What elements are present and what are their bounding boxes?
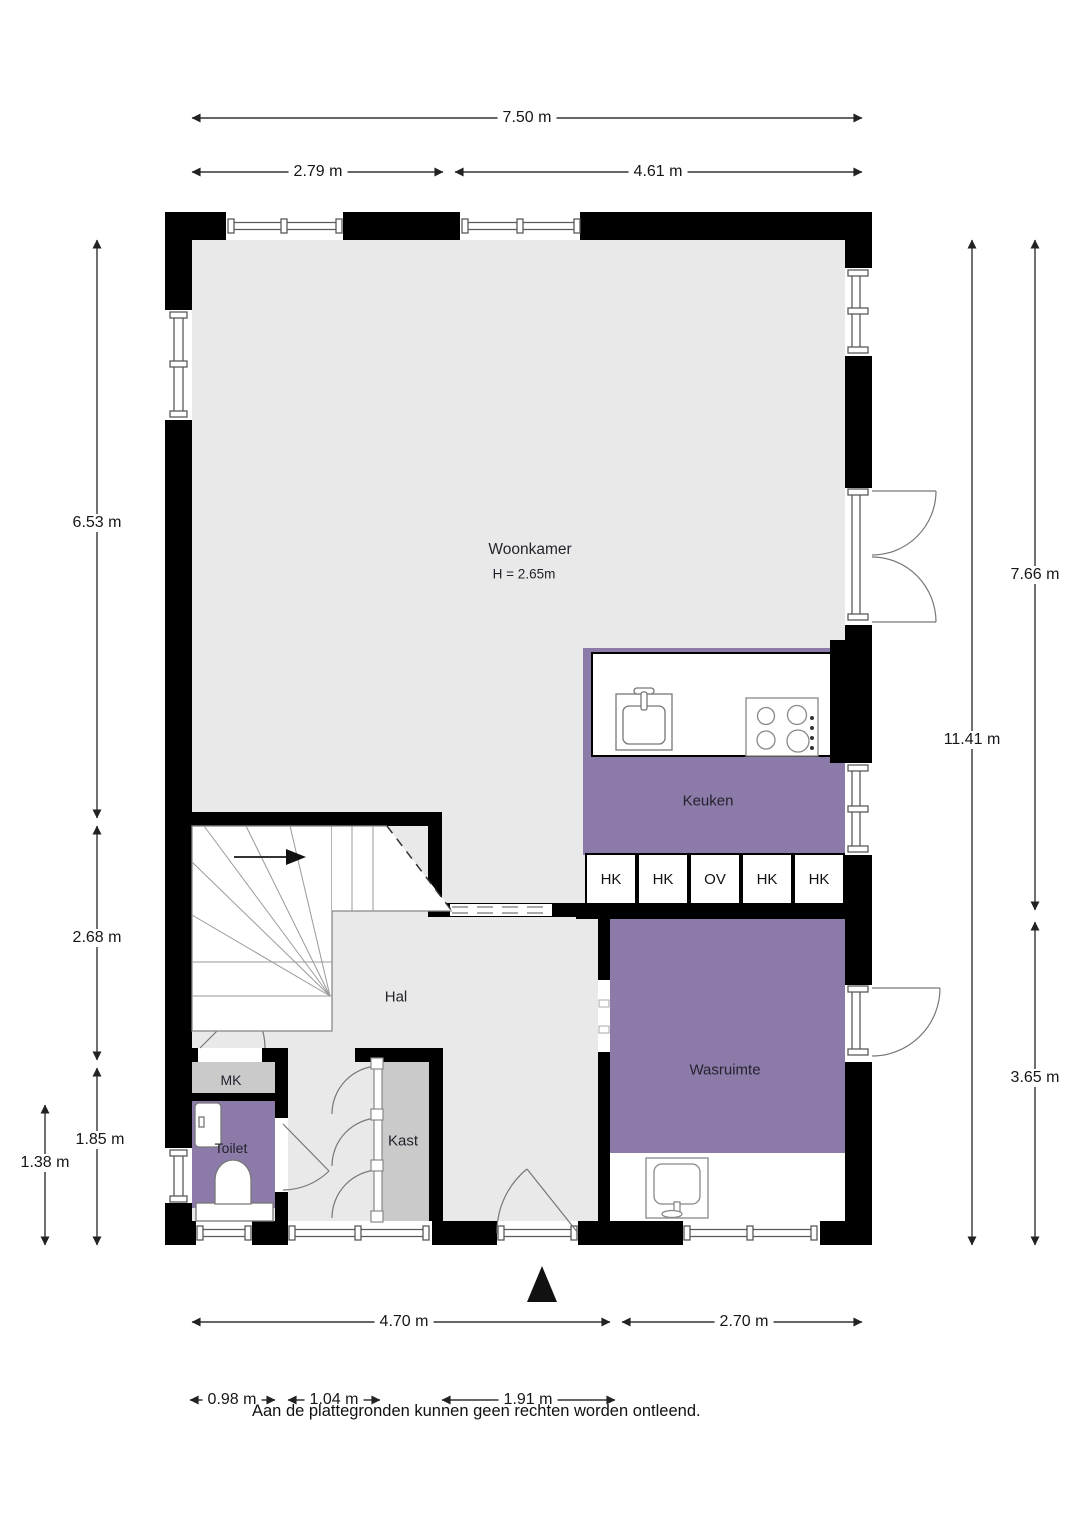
dim-top-left: 2.79 m [289, 163, 348, 181]
door-french [872, 491, 936, 622]
dim-left-upper: 6.53 m [68, 514, 127, 532]
dim-right-upper: 7.66 m [1006, 566, 1065, 584]
window-left-upper [165, 310, 192, 420]
dim-bottom-left: 4.70 m [375, 1313, 434, 1331]
door-wasruimte-hal-opening [598, 980, 610, 1052]
wall-mk-toilet-divider [192, 1093, 275, 1101]
opening-hal-woonkamer [450, 904, 552, 916]
dim-bottom-right: 2.70 m [715, 1313, 774, 1331]
wall-pier-kitchen [830, 640, 845, 763]
door-toilet-opening [275, 1118, 288, 1192]
cabinet-label: HK [653, 871, 674, 888]
dim-right-total: 11.41 m [939, 731, 1006, 749]
dim-top-total: 7.50 m [498, 109, 557, 127]
window-right-upper [845, 268, 872, 356]
disclaimer-text: Aan de plattegronden kunnen geen rechten… [252, 1402, 701, 1421]
door-front-opening [497, 1221, 578, 1245]
door-french-opening [845, 488, 872, 625]
room-wasruimte-fill [610, 919, 845, 1153]
wall-wasruimte-top [576, 905, 845, 919]
wasruimte-counter [610, 1153, 845, 1221]
room-label-wasruimte: Wasruimte [689, 1062, 760, 1079]
room-label-woonkamer: Woonkamer [488, 541, 571, 559]
window-bottom-wasruimte [683, 1221, 820, 1245]
cabinet-label: OV [704, 871, 726, 888]
wall-stairs-top [192, 812, 442, 826]
cabinet-hk-2: HK [637, 853, 689, 905]
dim-left-lower: 1.85 m [71, 1131, 130, 1149]
window-bottom-toilet [196, 1221, 252, 1245]
door-wasruimte-exterior [872, 988, 940, 1056]
room-label-kast: Kast [388, 1133, 418, 1150]
room-label-mk: MK [221, 1072, 242, 1088]
door-mk-opening [198, 1048, 262, 1062]
window-left-toilet [165, 1148, 192, 1203]
dim-left-inner: 1.38 m [16, 1154, 75, 1172]
cabinet-hk-1: HK [585, 853, 637, 905]
keuken-counter [591, 652, 841, 757]
dim-top-right: 4.61 m [629, 163, 688, 181]
window-bottom-hal [288, 1221, 432, 1245]
room-label-toilet: Toilet [215, 1140, 248, 1156]
dim-left-mid: 2.68 m [68, 929, 127, 947]
cabinet-label: HK [601, 871, 622, 888]
entrance-arrow-icon [527, 1266, 557, 1302]
room-label-hal: Hal [385, 989, 408, 1006]
cabinet-hk-4: HK [793, 853, 845, 905]
cabinet-label: HK [757, 871, 778, 888]
window-right-keuken [845, 763, 872, 855]
cabinet-hk-3: HK [741, 853, 793, 905]
wall-kast-top [355, 1048, 443, 1062]
wall-stairs-right [428, 826, 442, 905]
window-top-left [226, 212, 343, 240]
floorplan-page: HK HK OV HK HK [0, 0, 1080, 1526]
door-wasruimte-ext-opening [845, 985, 872, 1062]
cabinet-ov: OV [689, 853, 741, 905]
outer-wall-right [845, 212, 872, 1245]
dim-right-lower: 3.65 m [1006, 1069, 1065, 1087]
cabinet-label: HK [809, 871, 830, 888]
window-top-right [460, 212, 580, 240]
room-label-keuken: Keuken [683, 793, 734, 810]
wall-kast-right [429, 1062, 443, 1221]
wall-hal-wasruimte [598, 919, 610, 1221]
room-ceiling-height: H = 2.65m [493, 567, 556, 582]
